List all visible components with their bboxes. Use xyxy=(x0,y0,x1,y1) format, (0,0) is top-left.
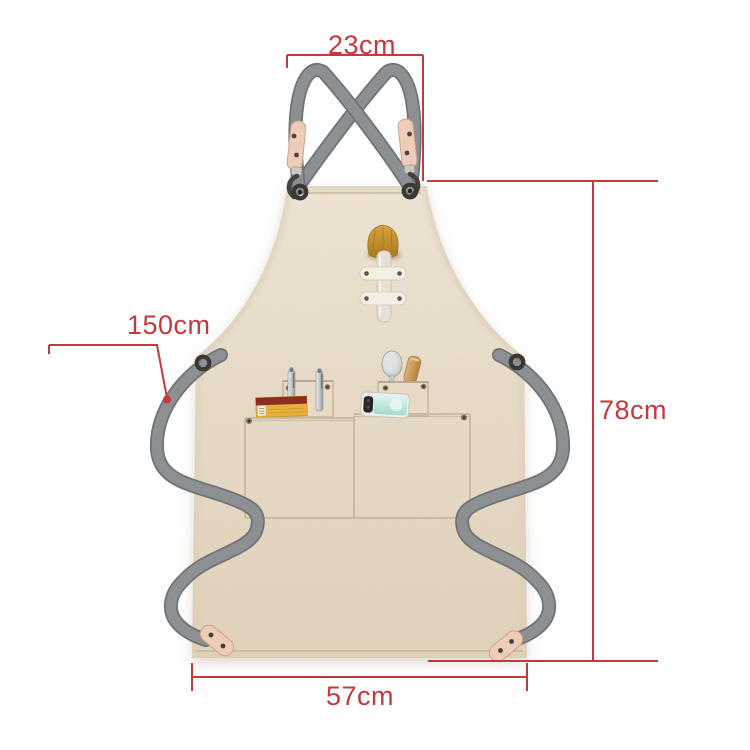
rivet xyxy=(221,644,226,649)
rivet xyxy=(364,296,369,301)
dim-leader-dot xyxy=(163,396,171,404)
yellow-box xyxy=(256,396,308,417)
dim-leader-strap-length xyxy=(49,345,167,398)
rivet xyxy=(407,132,412,137)
rivet xyxy=(498,648,503,653)
apron-fabric xyxy=(192,186,527,658)
rivet xyxy=(364,271,369,276)
rivet xyxy=(209,633,214,638)
dim-top-width-label: 23cm xyxy=(328,31,396,59)
phone-camera xyxy=(363,396,373,413)
rivet xyxy=(509,639,514,644)
shoulder-straps xyxy=(295,70,414,189)
apron-size-diagram: 23cm 150cm 78cm 57cm xyxy=(0,0,750,750)
apron-photo xyxy=(0,0,750,750)
rivet xyxy=(294,153,299,158)
dim-height-label: 78cm xyxy=(599,396,667,424)
smartphone xyxy=(360,392,409,418)
rivet xyxy=(397,271,402,276)
dim-strap-length-label: 150cm xyxy=(127,311,211,339)
rivet xyxy=(292,134,297,139)
rivet xyxy=(397,296,402,301)
dim-bottom-width-label: 57cm xyxy=(326,682,394,710)
rivet xyxy=(405,151,410,156)
